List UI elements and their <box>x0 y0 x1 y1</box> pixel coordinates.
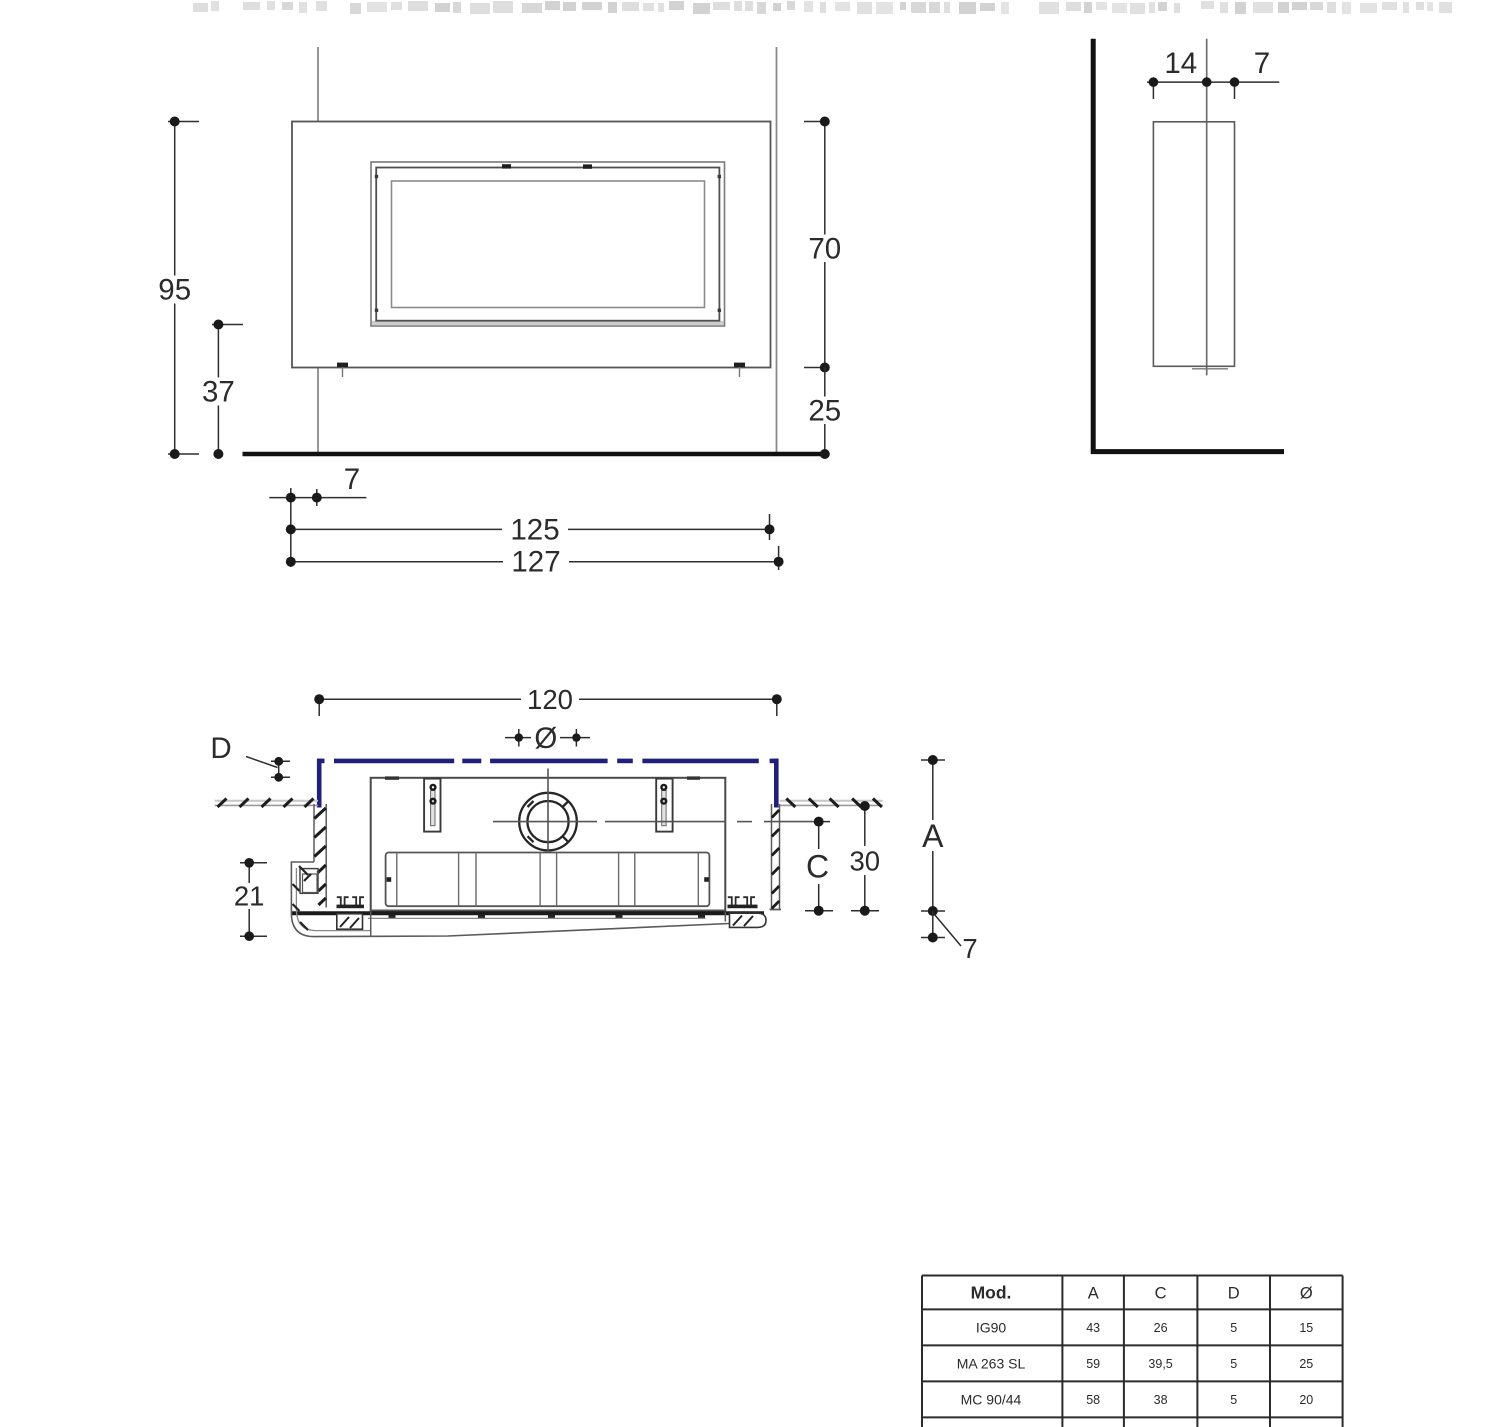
svg-text:C: C <box>1155 1285 1167 1303</box>
svg-text:IG90: IG90 <box>976 1319 1007 1335</box>
svg-text:26: 26 <box>1154 1321 1168 1335</box>
svg-text:5: 5 <box>1230 1393 1237 1407</box>
svg-text:127: 127 <box>511 546 560 579</box>
svg-text:D: D <box>1228 1285 1240 1303</box>
svg-text:43: 43 <box>1086 1321 1100 1335</box>
svg-text:15: 15 <box>1299 1321 1313 1335</box>
svg-text:7: 7 <box>344 463 360 496</box>
svg-text:7: 7 <box>962 933 977 964</box>
svg-text:37: 37 <box>202 376 235 409</box>
svg-text:59: 59 <box>1086 1357 1100 1371</box>
svg-text:25: 25 <box>1299 1357 1313 1371</box>
svg-text:5: 5 <box>1230 1321 1237 1335</box>
svg-text:D: D <box>210 732 231 765</box>
svg-text:25: 25 <box>808 395 841 428</box>
svg-text:95: 95 <box>158 274 191 307</box>
svg-text:MC 90/44: MC 90/44 <box>961 1391 1022 1407</box>
svg-text:120: 120 <box>527 684 573 715</box>
svg-text:Ø: Ø <box>1300 1285 1313 1303</box>
svg-text:7: 7 <box>1254 47 1270 80</box>
svg-text:38: 38 <box>1154 1393 1168 1407</box>
svg-text:21: 21 <box>234 881 265 912</box>
svg-text:125: 125 <box>510 513 559 546</box>
svg-text:5: 5 <box>1230 1357 1237 1371</box>
svg-text:MA 263 SL: MA 263 SL <box>957 1355 1026 1371</box>
svg-text:Ø: Ø <box>534 722 557 755</box>
svg-text:58: 58 <box>1086 1393 1100 1407</box>
svg-text:70: 70 <box>808 233 841 266</box>
svg-text:Mod.: Mod. <box>971 1283 1012 1303</box>
svg-text:A: A <box>922 818 944 854</box>
svg-text:14: 14 <box>1164 47 1197 80</box>
svg-text:20: 20 <box>1299 1393 1313 1407</box>
svg-text:A: A <box>1088 1285 1099 1303</box>
svg-text:30: 30 <box>850 846 881 877</box>
svg-text:39,5: 39,5 <box>1148 1357 1172 1371</box>
svg-text:C: C <box>806 849 829 885</box>
